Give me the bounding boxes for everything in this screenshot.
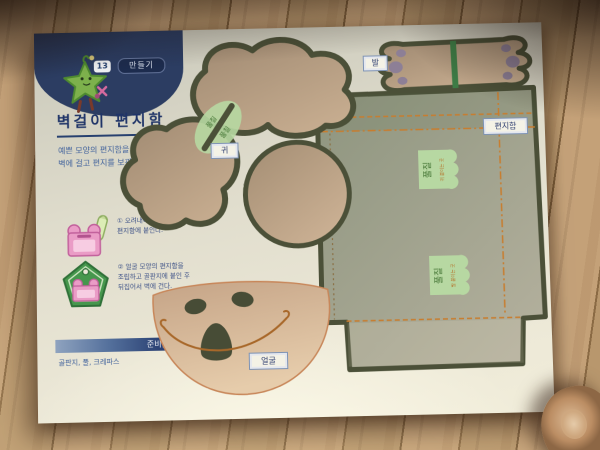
label-face: 얼굴 xyxy=(249,352,289,370)
craft-template-sheet: 13 만들기 벽걸이 편지함 예쁜 모양의 편지함을 벽에 걸고 편지를 보관해… xyxy=(34,22,555,423)
craft-pieces: 풀칠 귀 붙이는 곳 풀칠 발 붙이는 곳 풀칠 xyxy=(34,22,555,423)
label-letterbox: 편지함 xyxy=(483,117,528,135)
face-backing-circle-piece xyxy=(244,141,350,247)
paws-strip-piece xyxy=(377,37,531,92)
face-piece xyxy=(153,280,332,397)
photo-of-craft-sheet-on-floor: 13 만들기 벽걸이 편지함 예쁜 모양의 편지함을 벽에 걸고 편지를 보관해… xyxy=(0,0,600,450)
fingernail xyxy=(558,406,590,441)
glue-tab-ear: 풀칠 귀 붙이는 곳 xyxy=(418,149,459,189)
glue-tab-feet: 풀칠 발 붙이는 곳 xyxy=(429,255,470,296)
net-bottom-flap-shade xyxy=(348,319,524,366)
label-feet: 발 xyxy=(363,55,388,71)
glue-tab-label: 풀칠 xyxy=(433,267,445,284)
glue-tab-label: 풀칠 xyxy=(422,162,434,179)
label-ear: 귀 xyxy=(211,143,239,160)
